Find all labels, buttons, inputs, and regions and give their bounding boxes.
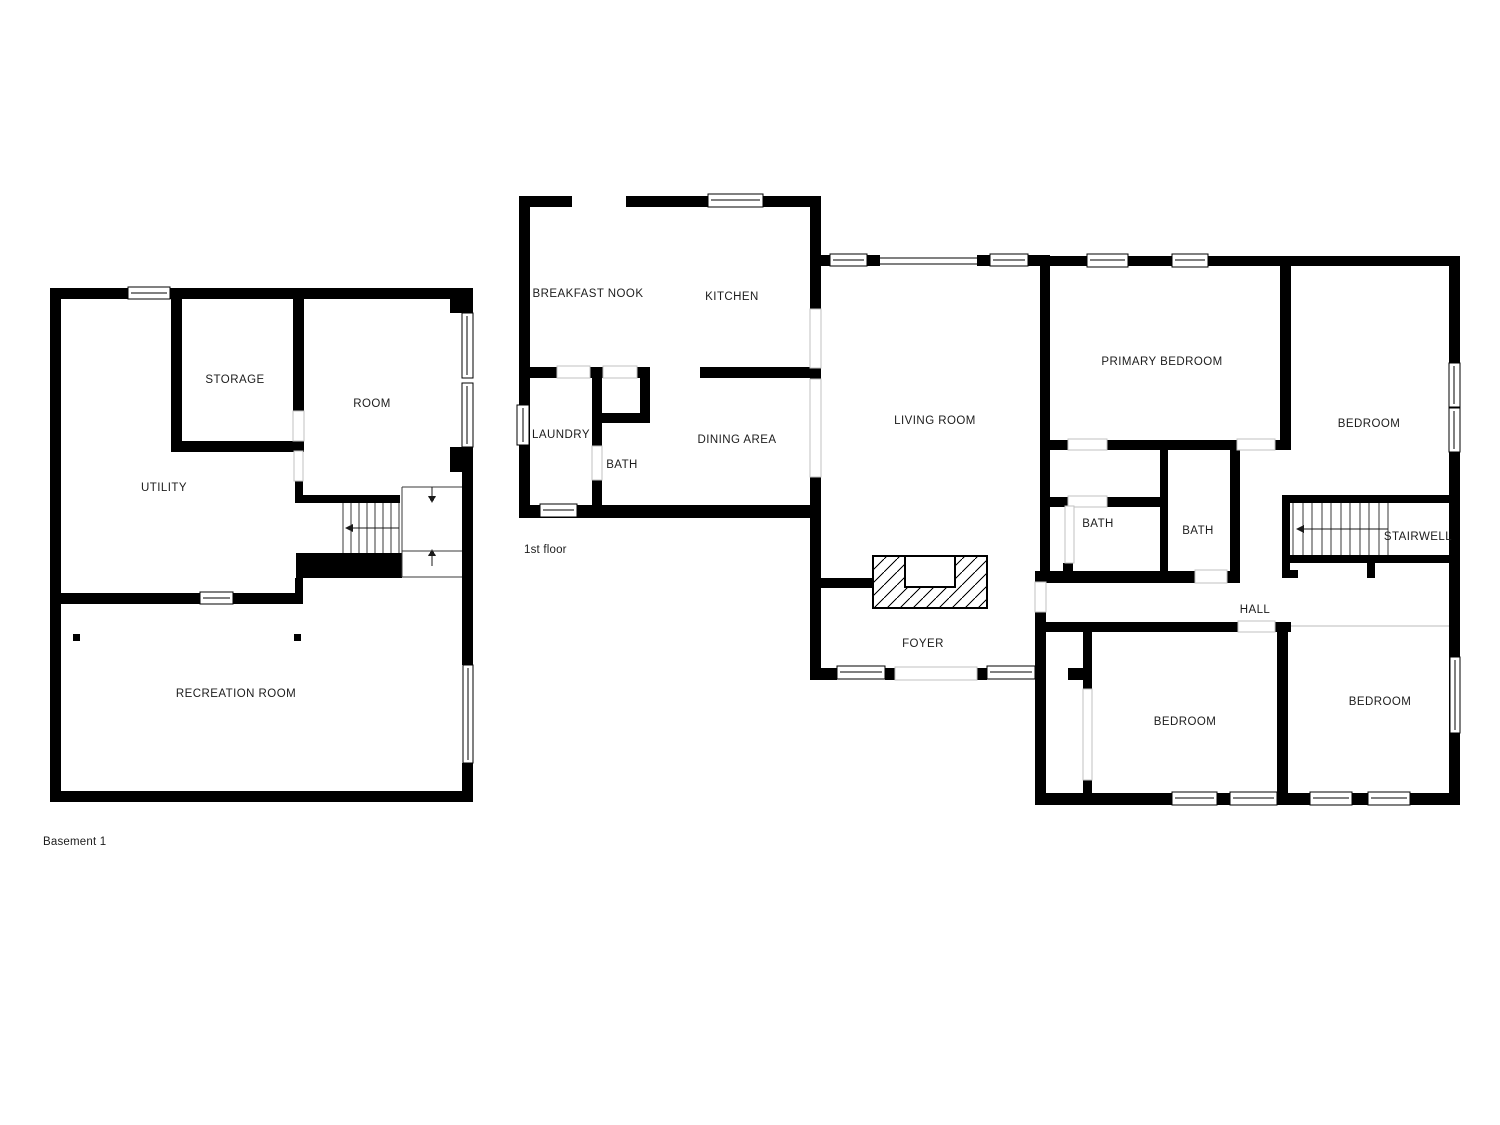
window-icon	[463, 665, 473, 763]
window-icon	[1449, 408, 1460, 452]
window-icon	[1172, 254, 1208, 267]
fireplace-icon	[873, 556, 987, 608]
floorplan-drawing	[0, 0, 1500, 1125]
first-floor-plan	[517, 194, 1460, 805]
basement-plan	[50, 287, 473, 802]
window-icon	[990, 254, 1028, 266]
basement-walls	[50, 288, 473, 802]
window-icon	[1087, 254, 1128, 267]
window-icon	[200, 592, 233, 604]
window-icon	[708, 194, 763, 207]
window-icon	[1310, 792, 1352, 805]
first-floor-stairs	[1293, 503, 1388, 555]
window-icon	[1368, 792, 1410, 805]
window-icon	[462, 313, 473, 378]
window-icon	[837, 666, 885, 679]
window-icon	[462, 383, 473, 447]
window-icon	[1449, 363, 1460, 407]
window-icon	[830, 254, 867, 266]
window-icon	[128, 287, 170, 299]
window-icon	[540, 504, 577, 517]
column-post	[73, 634, 80, 641]
column-post	[294, 634, 301, 641]
window-icon	[1450, 657, 1460, 733]
window-icon	[1172, 792, 1217, 805]
first-floor-walls	[519, 196, 1460, 805]
window-icon	[987, 666, 1035, 679]
window-icon	[1230, 792, 1277, 805]
floorplan-page: STORAGE ROOM UTILITY RECREATION ROOM Bas…	[0, 0, 1500, 1125]
glass-wall	[880, 258, 977, 264]
window-icon	[517, 405, 529, 445]
